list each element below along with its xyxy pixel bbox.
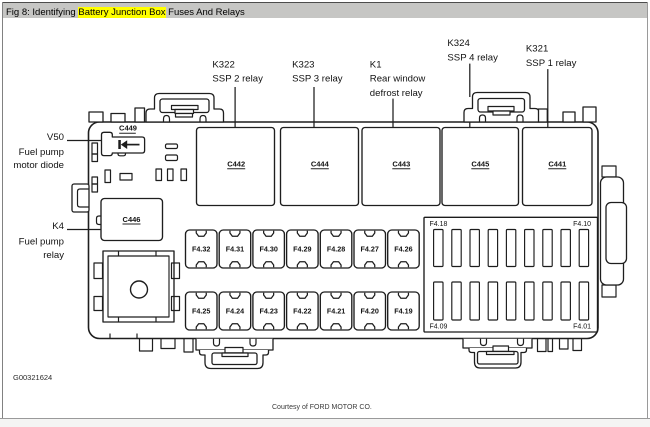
svg-text:F4.09: F4.09	[430, 324, 448, 331]
svg-text:Fuel pump: Fuel pump	[19, 147, 64, 158]
svg-text:K324: K324	[447, 38, 470, 49]
svg-text:F4.25: F4.25	[192, 307, 210, 316]
svg-text:F4.27: F4.27	[361, 245, 379, 254]
svg-text:defrost relay: defrost relay	[370, 88, 423, 99]
svg-text:C445: C445	[471, 159, 489, 168]
svg-text:motor diode: motor diode	[13, 160, 64, 171]
svg-text:F4.26: F4.26	[394, 245, 412, 254]
svg-text:C449: C449	[119, 124, 137, 133]
svg-text:SSP 1 relay: SSP 1 relay	[526, 58, 577, 69]
svg-text:K1: K1	[370, 59, 382, 70]
svg-text:K4: K4	[52, 221, 64, 232]
svg-text:F4.30: F4.30	[259, 245, 277, 254]
svg-text:F4.23: F4.23	[259, 307, 277, 316]
svg-text:C444: C444	[311, 159, 330, 168]
svg-text:SSP 4 relay: SSP 4 relay	[447, 52, 498, 63]
svg-text:Fuel pump: Fuel pump	[19, 236, 64, 247]
svg-text:F4.18: F4.18	[430, 221, 448, 228]
svg-text:F4.20: F4.20	[361, 307, 379, 316]
svg-text:F4.31: F4.31	[226, 245, 244, 254]
svg-text:C443: C443	[392, 159, 410, 168]
svg-text:F4.22: F4.22	[293, 307, 311, 316]
svg-text:F4.01: F4.01	[573, 324, 591, 331]
svg-text:F4.28: F4.28	[327, 245, 345, 254]
svg-text:F4.29: F4.29	[293, 245, 311, 254]
svg-text:C442: C442	[227, 159, 245, 168]
svg-text:K323: K323	[292, 59, 314, 70]
svg-text:C441: C441	[548, 159, 566, 168]
svg-text:V50: V50	[47, 132, 64, 143]
svg-text:K321: K321	[526, 43, 548, 54]
svg-text:F4.21: F4.21	[327, 307, 345, 316]
svg-text:SSP 2 relay: SSP 2 relay	[212, 73, 263, 84]
svg-text:F4.24: F4.24	[226, 307, 244, 316]
svg-text:SSP 3 relay: SSP 3 relay	[292, 73, 343, 84]
svg-text:K322: K322	[212, 59, 234, 70]
svg-text:C446: C446	[123, 215, 141, 224]
svg-text:F4.10: F4.10	[573, 221, 591, 228]
svg-text:relay: relay	[43, 250, 64, 261]
svg-text:F4.32: F4.32	[192, 245, 210, 254]
svg-text:Rear window: Rear window	[370, 74, 426, 85]
svg-text:F4.19: F4.19	[394, 307, 412, 316]
